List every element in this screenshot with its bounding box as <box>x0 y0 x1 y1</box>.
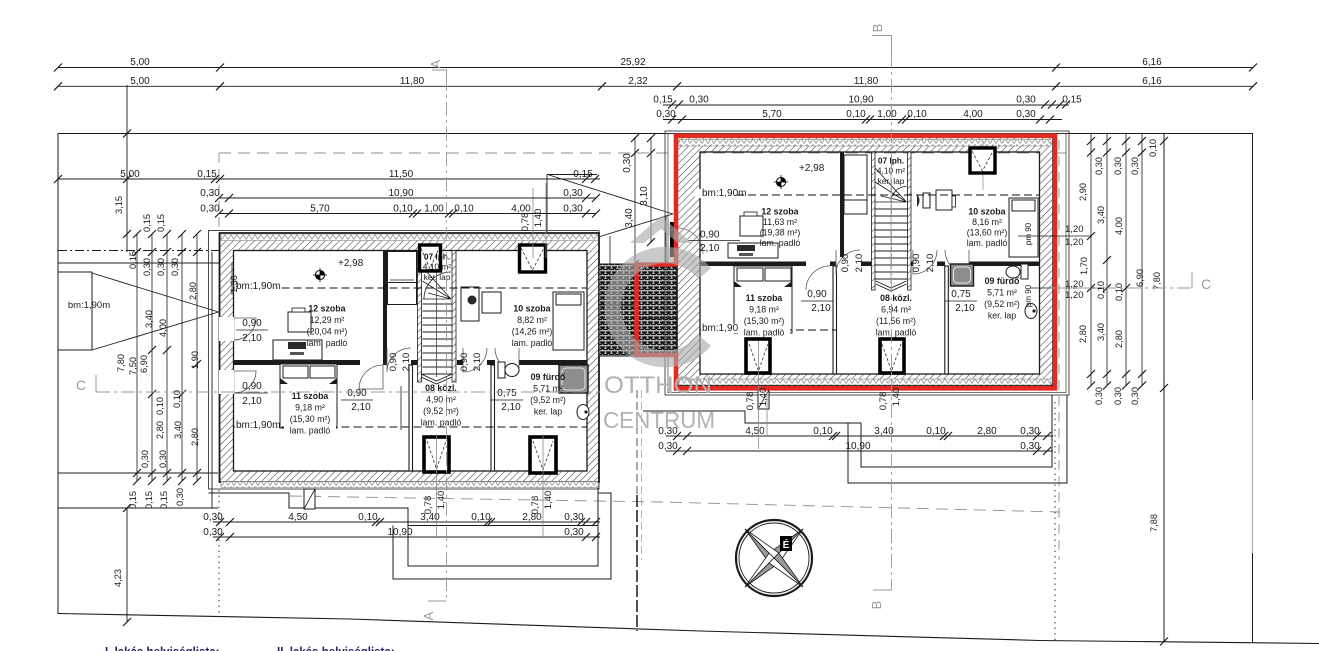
svg-text:4,90 m²: 4,90 m² <box>426 395 456 405</box>
svg-text:lam. padló: lam. padló <box>421 418 462 428</box>
svg-text:0,90: 0,90 <box>242 318 262 329</box>
svg-text:É: É <box>783 538 790 551</box>
svg-text:0,90: 0,90 <box>700 230 720 241</box>
svg-text:5,70: 5,70 <box>310 204 330 215</box>
svg-text:7,80: 7,80 <box>116 354 126 372</box>
svg-text:bm:1,90m: bm:1,90m <box>702 188 746 199</box>
svg-text:2,10: 2,10 <box>955 303 975 314</box>
svg-text:0,10: 0,10 <box>1148 139 1158 157</box>
svg-text:10 szoba: 10 szoba <box>968 207 1005 217</box>
svg-text:10 szoba: 10 szoba <box>513 304 550 314</box>
svg-text:0,30: 0,30 <box>203 527 223 538</box>
svg-text:lam. padló: lam. padló <box>307 338 348 348</box>
svg-text:08 közl.: 08 közl. <box>425 383 457 393</box>
svg-text:0,30: 0,30 <box>1094 157 1104 175</box>
svg-text:bm:1,90m: bm:1,90m <box>236 420 280 431</box>
svg-text:10,90: 10,90 <box>387 527 412 538</box>
svg-text:7,80: 7,80 <box>1152 272 1162 290</box>
svg-text:4,50: 4,50 <box>745 426 765 437</box>
svg-text:0,30: 0,30 <box>658 441 678 452</box>
svg-text:0,10: 0,10 <box>926 426 946 437</box>
svg-text:0,30: 0,30 <box>203 512 223 523</box>
svg-text:(20,04 m²): (20,04 m²) <box>307 327 348 337</box>
svg-text:10,90: 10,90 <box>845 441 870 452</box>
svg-text:0,30: 0,30 <box>1130 157 1140 175</box>
svg-text:11,80: 11,80 <box>400 76 425 87</box>
svg-text:2,80: 2,80 <box>188 282 198 300</box>
svg-text:5,00: 5,00 <box>130 76 150 87</box>
svg-text:2,10: 2,10 <box>501 402 521 413</box>
svg-text:0,30: 0,30 <box>170 258 180 276</box>
svg-text:2,10: 2,10 <box>925 254 936 273</box>
svg-text:6,90: 6,90 <box>139 355 149 373</box>
svg-text:3,10: 3,10 <box>639 186 650 206</box>
svg-text:0,90: 0,90 <box>807 289 827 300</box>
svg-text:(13,60 m²): (13,60 m²) <box>967 228 1008 238</box>
svg-text:5,00: 5,00 <box>120 169 140 180</box>
svg-text:0,90: 0,90 <box>911 254 922 273</box>
svg-text:0,15: 0,15 <box>142 214 152 232</box>
svg-text:0,30: 0,30 <box>142 258 152 276</box>
svg-text:(14,26 m²): (14,26 m²) <box>512 327 553 337</box>
svg-text:6,94 m²: 6,94 m² <box>881 305 911 315</box>
svg-text:0,30: 0,30 <box>1016 109 1036 120</box>
svg-text:08 közl.: 08 közl. <box>880 293 912 303</box>
svg-text:(9,52 m²): (9,52 m²) <box>984 299 1020 309</box>
svg-text:0,78: 0,78 <box>745 392 756 411</box>
svg-text:0,78: 0,78 <box>520 213 531 232</box>
svg-text:5,00: 5,00 <box>130 57 150 68</box>
svg-text:0,30: 0,30 <box>1113 157 1123 175</box>
svg-text:pm 90: pm 90 <box>1024 222 1033 245</box>
svg-text:OTTHON: OTTHON <box>604 372 712 399</box>
svg-text:0,30: 0,30 <box>200 188 220 199</box>
svg-text:0,30: 0,30 <box>563 188 583 199</box>
svg-text:1,20: 1,20 <box>1065 237 1084 248</box>
svg-text:0,30: 0,30 <box>200 204 220 215</box>
svg-text:bm:1,90m: bm:1,90m <box>236 281 280 292</box>
svg-text:2,32: 2,32 <box>628 76 648 87</box>
svg-text:bm:1,90m: bm:1,90m <box>68 300 110 311</box>
svg-text:0,30: 0,30 <box>563 204 583 215</box>
svg-text:0,30: 0,30 <box>1020 441 1040 452</box>
svg-text:(15,30 m²): (15,30 m²) <box>744 316 785 326</box>
svg-text:4,50: 4,50 <box>288 512 308 523</box>
svg-text:12 szoba: 12 szoba <box>308 304 345 314</box>
svg-text:0,10: 0,10 <box>1114 283 1124 301</box>
svg-text:B: B <box>869 601 884 610</box>
svg-text:lam. padló: lam. padló <box>744 328 785 338</box>
svg-text:0,10: 0,10 <box>454 204 474 215</box>
svg-text:3,40: 3,40 <box>1096 206 1106 224</box>
svg-text:0,10: 0,10 <box>155 397 165 415</box>
svg-text:0,30: 0,30 <box>1113 387 1123 405</box>
svg-text:0,10: 0,10 <box>907 109 927 120</box>
svg-text:11 szoba: 11 szoba <box>746 293 783 303</box>
svg-text:12,29 m²: 12,29 m² <box>310 315 345 325</box>
svg-text:10,90: 10,90 <box>848 95 873 106</box>
svg-text:0,30: 0,30 <box>175 488 185 506</box>
svg-text:lam. padló: lam. padló <box>290 426 331 436</box>
svg-text:07 lph.: 07 lph. <box>878 156 904 166</box>
svg-text:0,90: 0,90 <box>347 388 367 399</box>
svg-text:lam. padló: lam. padló <box>876 328 917 338</box>
svg-text:(19,38 m²): (19,38 m²) <box>760 228 801 238</box>
svg-text:0,15: 0,15 <box>653 95 673 106</box>
svg-text:4,23: 4,23 <box>113 569 123 587</box>
svg-text:09 fürdő: 09 fürdő <box>531 372 566 382</box>
svg-text:1,20: 1,20 <box>1065 290 1084 301</box>
svg-text:8,82 m²: 8,82 m² <box>517 315 547 325</box>
svg-text:1,90: 1,90 <box>190 351 200 369</box>
svg-text:lam. padló: lam. padló <box>967 238 1008 248</box>
svg-text:I. lakás helyiséglista:: I. lakás helyiséglista: <box>105 647 219 651</box>
svg-text:(11,56 m²): (11,56 m²) <box>876 316 916 326</box>
svg-text:2,80: 2,80 <box>1114 330 1124 348</box>
svg-text:lam. padló: lam. padló <box>512 338 553 348</box>
svg-text:CENTRUM: CENTRUM <box>603 407 715 433</box>
svg-text:0,78: 0,78 <box>878 392 889 411</box>
svg-text:0,75: 0,75 <box>951 289 971 300</box>
svg-text:1,40: 1,40 <box>543 491 554 510</box>
svg-text:3,40: 3,40 <box>624 208 635 228</box>
svg-text:0,78: 0,78 <box>423 496 434 515</box>
svg-text:2,10: 2,10 <box>351 402 371 413</box>
svg-text:7,88: 7,88 <box>1149 514 1159 532</box>
svg-text:1,36: 1,36 <box>229 275 239 293</box>
svg-text:0,90: 0,90 <box>242 381 262 392</box>
svg-text:0,90: 0,90 <box>459 353 470 372</box>
svg-text:0,10: 0,10 <box>393 204 413 215</box>
svg-text:(15,30 m²): (15,30 m²) <box>290 414 331 424</box>
svg-text:5,70: 5,70 <box>762 109 782 120</box>
svg-text:0,15: 0,15 <box>156 214 166 232</box>
svg-text:ker. lap: ker. lap <box>534 407 562 417</box>
svg-text:1,70: 1,70 <box>1079 257 1089 275</box>
svg-text:+2,98: +2,98 <box>338 258 364 269</box>
svg-text:0,30: 0,30 <box>564 512 584 523</box>
svg-text:11 szoba: 11 szoba <box>292 391 329 401</box>
svg-text:1,40: 1,40 <box>758 388 769 407</box>
svg-text:12 szoba: 12 szoba <box>761 207 798 217</box>
svg-text:B: B <box>870 24 885 33</box>
svg-text:0,30: 0,30 <box>564 527 584 538</box>
svg-text:4,00: 4,00 <box>963 109 983 120</box>
svg-text:1,40: 1,40 <box>533 209 544 228</box>
svg-text:5,71 m²: 5,71 m² <box>987 288 1017 298</box>
svg-text:09 fürdő: 09 fürdő <box>985 276 1020 286</box>
svg-text:2,80: 2,80 <box>1078 325 1088 343</box>
svg-text:2,80: 2,80 <box>977 426 997 437</box>
svg-text:7,50: 7,50 <box>128 357 138 375</box>
svg-text:0,30: 0,30 <box>158 450 168 468</box>
svg-text:0,15: 0,15 <box>128 251 138 269</box>
svg-text:II. lakás helyiséglista:: II. lakás helyiséglista: <box>277 647 395 651</box>
svg-text:4,10 m²: 4,10 m² <box>423 262 451 272</box>
svg-text:A: A <box>421 611 436 620</box>
svg-text:2,80: 2,80 <box>155 421 165 439</box>
svg-text:2,10: 2,10 <box>854 254 865 273</box>
svg-text:0,10: 0,10 <box>358 512 378 523</box>
svg-text:11,80: 11,80 <box>854 76 879 87</box>
svg-text:10,90: 10,90 <box>388 188 413 199</box>
svg-text:0,30: 0,30 <box>689 95 709 106</box>
svg-text:0,30: 0,30 <box>1020 426 1040 437</box>
svg-text:0,15: 0,15 <box>573 169 593 180</box>
svg-text:(9,52 m²): (9,52 m²) <box>530 395 566 405</box>
svg-text:6,16: 6,16 <box>1142 57 1162 68</box>
svg-text:C: C <box>76 377 86 393</box>
svg-text:9,18 m²: 9,18 m² <box>295 403 325 413</box>
svg-text:0,15: 0,15 <box>144 491 154 509</box>
svg-text:2,90: 2,90 <box>1078 183 1088 201</box>
svg-text:6,90: 6,90 <box>1135 269 1145 287</box>
svg-text:0,90: 0,90 <box>388 353 399 372</box>
svg-text:1,00: 1,00 <box>424 204 444 215</box>
svg-text:0,15: 0,15 <box>159 491 169 509</box>
svg-text:2,10: 2,10 <box>700 243 720 254</box>
svg-text:+2,98: +2,98 <box>799 163 825 174</box>
svg-text:0,78: 0,78 <box>530 496 541 515</box>
svg-text:11,50: 11,50 <box>389 169 414 180</box>
svg-text:2,10: 2,10 <box>242 396 262 407</box>
svg-text:ker. lap: ker. lap <box>988 311 1016 321</box>
svg-text:6,16: 6,16 <box>1142 76 1162 87</box>
svg-text:A: A <box>428 59 443 68</box>
svg-text:0,30: 0,30 <box>1130 387 1140 405</box>
svg-text:0,30: 0,30 <box>156 258 166 276</box>
svg-text:2,10: 2,10 <box>811 303 831 314</box>
svg-text:1,00: 1,00 <box>877 109 897 120</box>
svg-text:lam. padló: lam. padló <box>760 238 801 248</box>
svg-text:0,15: 0,15 <box>197 169 217 180</box>
svg-text:2,10: 2,10 <box>401 353 412 372</box>
svg-text:0,10: 0,10 <box>1096 281 1106 299</box>
svg-text:1,40: 1,40 <box>891 388 902 407</box>
svg-text:0,75: 0,75 <box>497 388 517 399</box>
svg-text:2,10: 2,10 <box>472 353 483 372</box>
svg-text:0,10: 0,10 <box>471 512 491 523</box>
svg-text:C: C <box>1201 276 1211 292</box>
svg-text:4,00: 4,00 <box>1114 217 1124 235</box>
svg-text:0,10: 0,10 <box>846 109 866 120</box>
svg-text:3,15: 3,15 <box>114 196 124 214</box>
svg-text:3,40: 3,40 <box>173 421 183 439</box>
svg-text:2,10: 2,10 <box>242 333 262 344</box>
svg-text:2,80: 2,80 <box>190 428 200 446</box>
svg-text:8,16 m²: 8,16 m² <box>972 217 1002 227</box>
svg-text:(9,52 m²): (9,52 m²) <box>423 406 459 416</box>
svg-text:0,30: 0,30 <box>1016 95 1036 106</box>
svg-text:0,15: 0,15 <box>1062 95 1082 106</box>
svg-text:1,20: 1,20 <box>1065 224 1084 235</box>
svg-text:0,30: 0,30 <box>1094 387 1104 405</box>
svg-text:0,90: 0,90 <box>840 254 851 273</box>
svg-text:0,30: 0,30 <box>656 109 676 120</box>
svg-text:4,00: 4,00 <box>511 204 531 215</box>
svg-text:3,40: 3,40 <box>144 310 154 328</box>
svg-text:0,30: 0,30 <box>140 450 150 468</box>
svg-text:9,18 m²: 9,18 m² <box>749 305 779 315</box>
svg-text:4,00: 4,00 <box>158 319 168 337</box>
svg-text:0,10: 0,10 <box>172 390 182 408</box>
svg-text:11,63 m²: 11,63 m² <box>763 217 797 227</box>
svg-text:25,92: 25,92 <box>620 57 645 68</box>
svg-text:0,10: 0,10 <box>813 426 833 437</box>
svg-text:0,30: 0,30 <box>622 153 633 173</box>
svg-text:3,40: 3,40 <box>1096 323 1106 341</box>
svg-text:1,40: 1,40 <box>436 491 447 510</box>
